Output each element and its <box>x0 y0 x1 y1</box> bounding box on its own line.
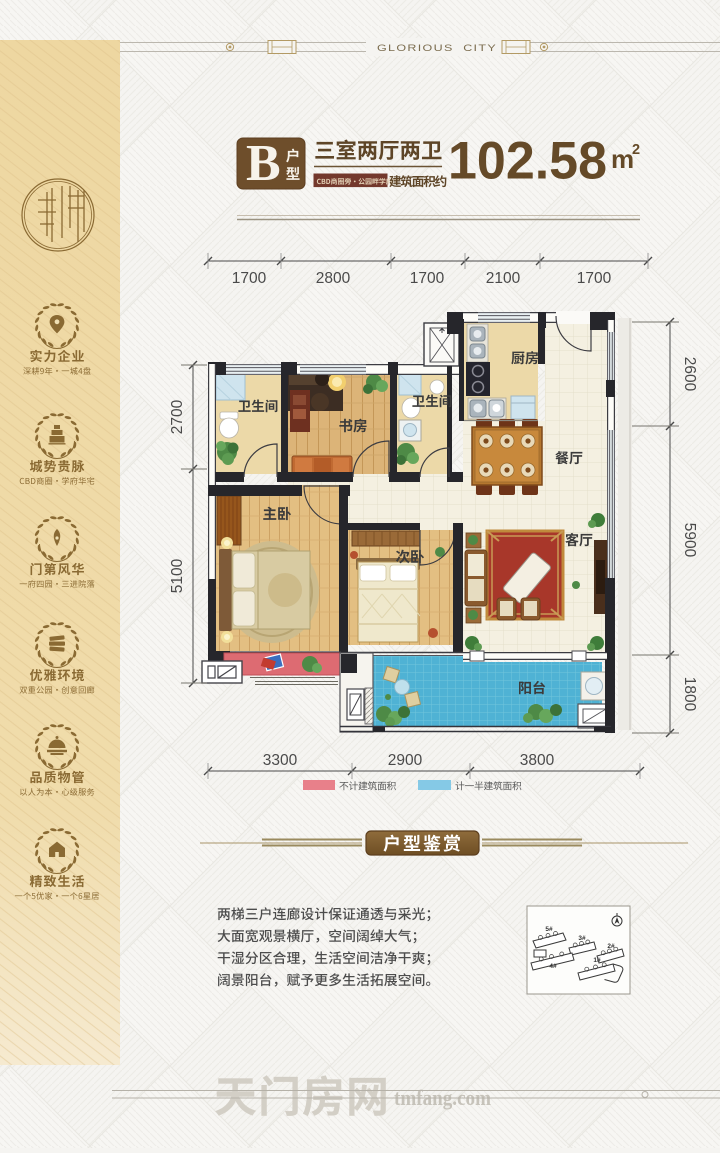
svg-text:m: m <box>611 144 634 174</box>
svg-text:1700: 1700 <box>232 270 267 287</box>
svg-text:2800: 2800 <box>316 270 351 287</box>
svg-text:GLORIOUS CITY: GLORIOUS CITY <box>377 43 497 54</box>
svg-text:102.58: 102.58 <box>448 132 607 191</box>
svg-text:2100: 2100 <box>486 270 521 287</box>
svg-text:5900: 5900 <box>681 523 698 558</box>
svg-text:1#: 1# <box>593 957 601 964</box>
svg-text:2900: 2900 <box>388 752 423 769</box>
svg-text:2700: 2700 <box>169 399 186 434</box>
svg-text:B: B <box>246 135 281 192</box>
svg-text:4#: 4# <box>549 963 557 970</box>
svg-text:5#: 5# <box>545 926 553 933</box>
svg-text:1700: 1700 <box>577 270 612 287</box>
svg-text:1800: 1800 <box>681 677 698 712</box>
svg-text:2: 2 <box>632 142 640 158</box>
svg-text:2600: 2600 <box>681 357 698 392</box>
svg-text:2#: 2# <box>607 943 615 950</box>
svg-text:1700: 1700 <box>410 270 445 287</box>
svg-text:3#: 3# <box>578 935 586 942</box>
svg-text:3800: 3800 <box>520 752 555 769</box>
svg-text:5100: 5100 <box>169 558 186 593</box>
svg-text:3300: 3300 <box>263 752 298 769</box>
